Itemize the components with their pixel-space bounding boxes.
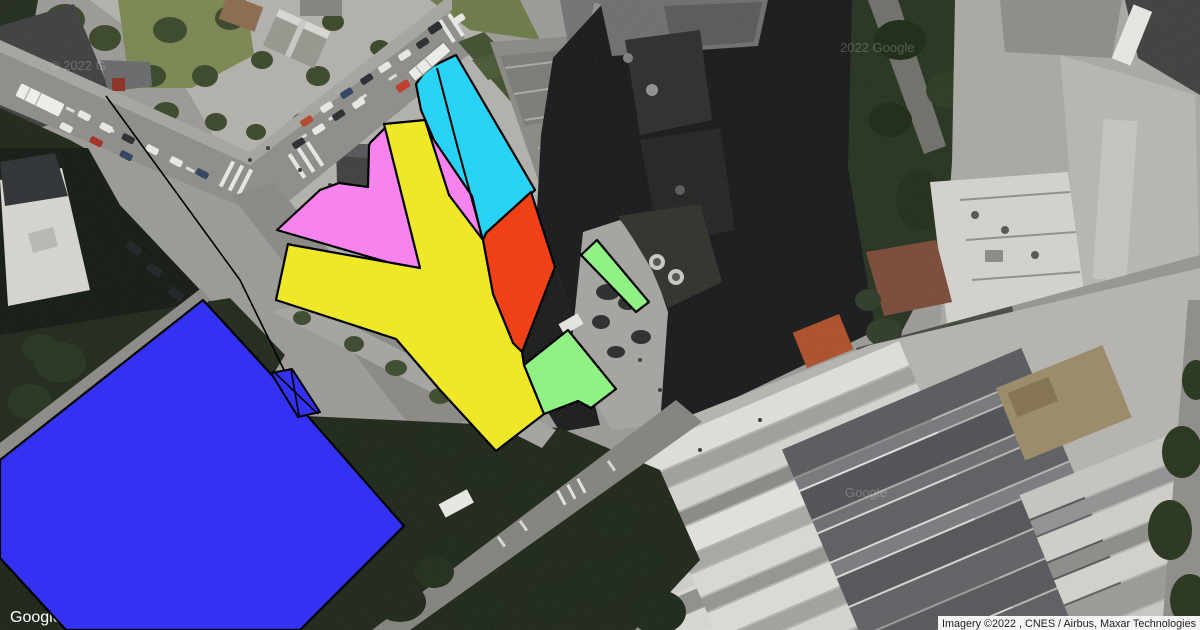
svg-text:Imagery ©2022 , CNES / Airbus,: Imagery ©2022 , CNES / Airbus, Maxar Tec…: [942, 618, 1196, 630]
svg-text:Google: Google: [845, 485, 887, 500]
svg-text:2022 Google: 2022 Google: [840, 40, 914, 55]
svg-text:© 2022 G: © 2022 G: [50, 58, 106, 73]
